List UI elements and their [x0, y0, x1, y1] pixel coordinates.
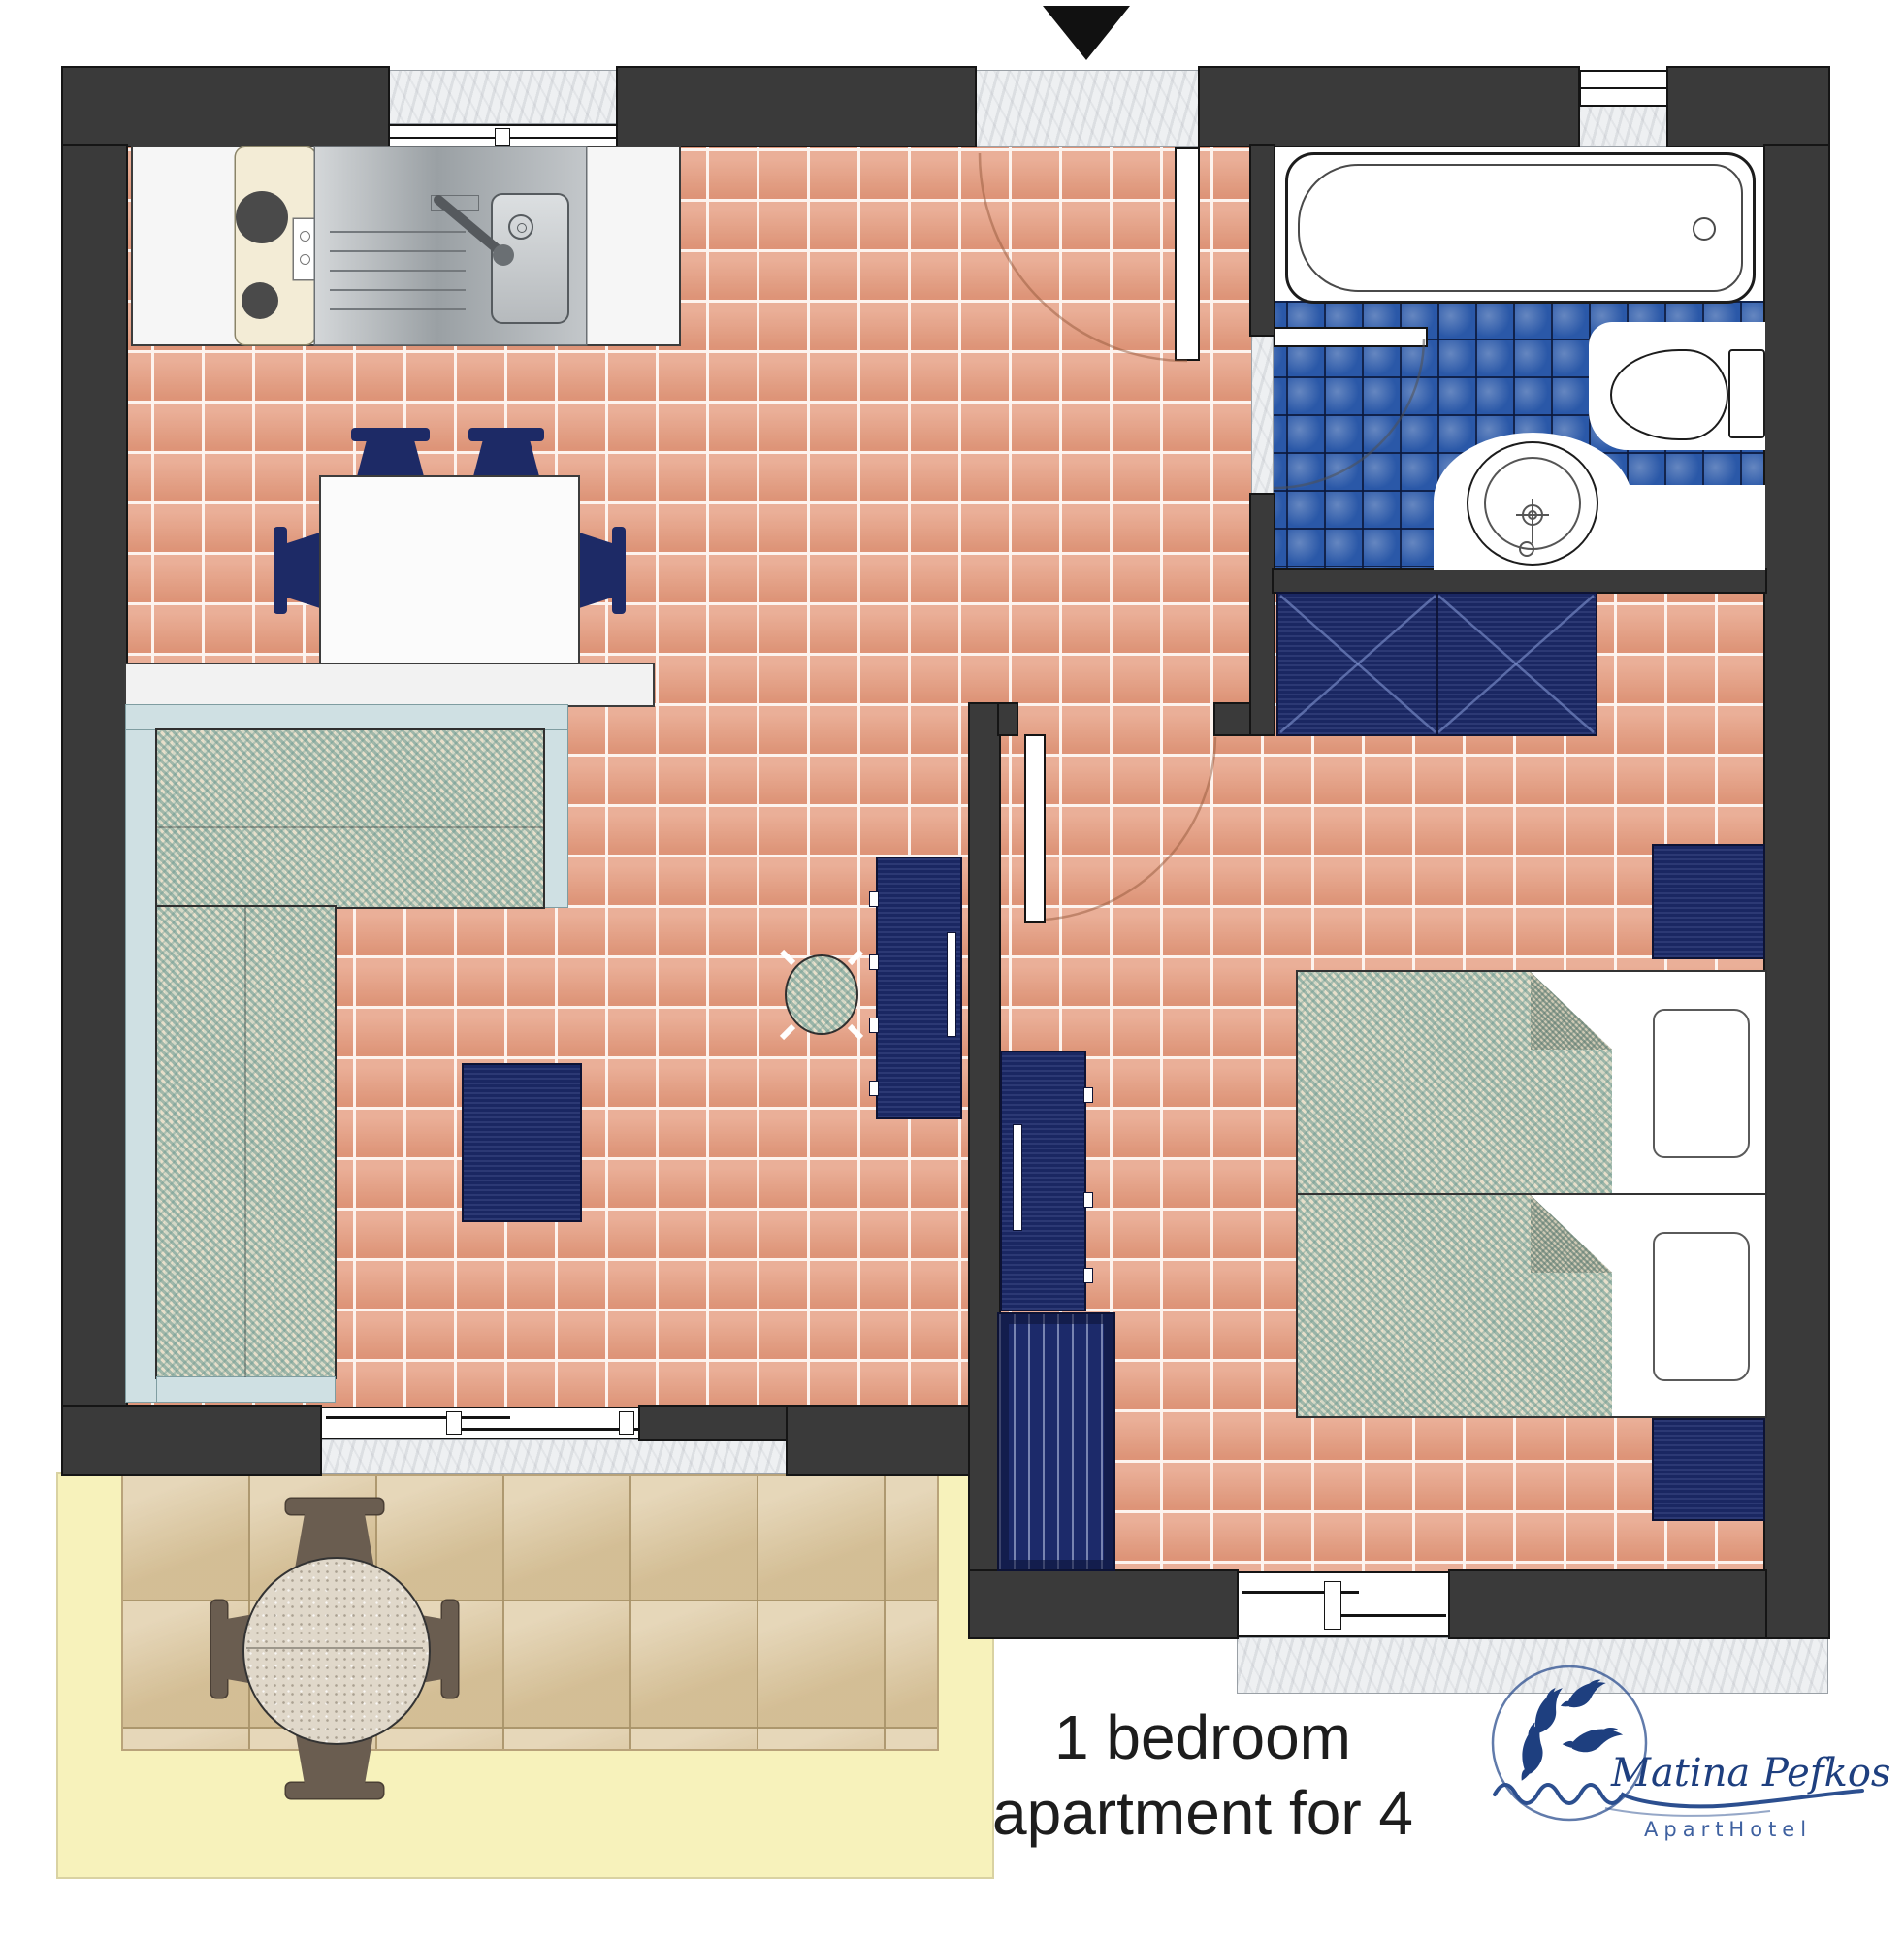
stove-burner-small — [242, 282, 278, 319]
wall-shelf — [126, 664, 653, 705]
dining-chair-back-3 — [274, 527, 287, 614]
wall-bedroom-bottom-b — [1450, 1571, 1765, 1637]
wall-bathroom-left-lower — [1251, 495, 1274, 734]
wall-bathroom-left-upper — [1251, 145, 1274, 335]
entrance-door-leaf — [1175, 147, 1200, 361]
bedroom-dresser-hinge — [1084, 1269, 1092, 1282]
logo-name: Matina Pefkos — [1610, 1751, 1890, 1795]
luggage-bench — [999, 1314, 1113, 1569]
terrace-chair-back-s — [286, 1783, 383, 1798]
nightstand-bottom — [1654, 1420, 1763, 1519]
logo-wave-2 — [1605, 1808, 1770, 1816]
dolphins-icon — [1500, 1673, 1625, 1781]
living-window-sill — [320, 1439, 788, 1474]
entrance-threshold — [975, 70, 1200, 147]
wall-right — [1765, 145, 1828, 1637]
bed-2-pillow — [1653, 1232, 1750, 1381]
hotel-logo: Matina Pefkos ApartHotel — [1489, 1647, 1896, 1938]
wall-top-d — [1668, 68, 1828, 145]
terrace-tile-floor — [121, 1474, 939, 1751]
wall-bathroom-bottom — [1274, 570, 1765, 592]
bathtub-drain — [1693, 217, 1716, 241]
sofa-cushions-horizontal — [157, 730, 543, 907]
bathtub — [1285, 152, 1756, 304]
entrance-arrow-icon — [1043, 6, 1130, 60]
bedroom-dresser-handle — [1014, 1125, 1021, 1230]
bedroom-door-leaf — [1024, 734, 1046, 923]
caption: 1 bedroom apartment for 4 — [902, 1699, 1503, 1851]
living-terrace-window — [320, 1406, 640, 1439]
sofa-frame-left — [126, 730, 157, 1402]
sofa-seam-v — [244, 907, 246, 1377]
washbasin-inner — [1484, 457, 1581, 550]
wall-bedroom-door-stub-left — [999, 704, 1017, 734]
bathroom-window — [1579, 70, 1668, 107]
toilet-tank — [1728, 349, 1765, 438]
floorplan-canvas: 1 bedroom apartment for 4 — [0, 0, 1904, 1940]
bedroom-dresser-hinge — [1084, 1088, 1092, 1102]
tv-cabinet-hinge — [870, 955, 878, 969]
dining-chair-back-2 — [468, 428, 544, 441]
bathroom-door-leaf — [1274, 327, 1428, 347]
wall-bedroom-bottom-a — [970, 1571, 1237, 1637]
wall-living-bottom-c — [788, 1406, 999, 1474]
coffee-table — [464, 1065, 580, 1220]
tv-cabinet-hinge — [870, 892, 878, 906]
kitchen-window-sill — [388, 70, 618, 124]
sofa-seam-h — [157, 826, 543, 828]
bedroom-dresser-hinge — [1084, 1193, 1092, 1207]
terrace-table-seam — [246, 1647, 423, 1649]
dining-chair-seat-2 — [472, 441, 540, 480]
tv-cabinet-hinge — [870, 1082, 878, 1095]
dining-chair-back-1 — [351, 428, 430, 441]
stove-control-panel — [294, 219, 315, 279]
sink-drainboard-lines — [330, 231, 475, 318]
wall-partition-bedroom — [970, 704, 999, 1571]
stove-burner-large — [236, 191, 288, 243]
sink-soap-tray — [431, 195, 479, 211]
logo-subtitle: ApartHotel — [1644, 1818, 1812, 1841]
terrace-chair-back-w — [211, 1600, 227, 1697]
wardrobe — [1278, 594, 1596, 734]
nightstand-top — [1654, 846, 1763, 957]
terrace-round-table — [242, 1557, 431, 1745]
caption-line-2: apartment for 4 — [902, 1775, 1503, 1851]
dining-chair-back-4 — [612, 527, 626, 614]
wall-left — [63, 145, 126, 1474]
wall-living-bottom-b — [640, 1406, 788, 1439]
wall-living-bottom-a — [63, 1406, 320, 1474]
dining-table — [321, 477, 578, 663]
sofa-frame-right-cap — [543, 730, 567, 907]
sofa-frame-top — [126, 705, 567, 730]
dining-chair-seat-4 — [576, 532, 612, 609]
wall-top-c — [1200, 68, 1578, 145]
wall-top-a — [63, 68, 388, 145]
bedroom-window — [1237, 1571, 1450, 1637]
terrace-chair-back-e — [442, 1600, 458, 1697]
kitchen-window — [388, 124, 618, 149]
round-stool — [787, 956, 856, 1033]
sink-basin — [491, 193, 569, 324]
tv-cabinet-hinge — [870, 1018, 878, 1032]
dining-chair-seat-3 — [287, 532, 323, 609]
caption-line-1: 1 bedroom — [902, 1699, 1503, 1775]
sink-drain — [508, 214, 533, 240]
tv-cabinet-handle — [948, 933, 955, 1036]
wall-top-b — [618, 68, 975, 145]
dining-chair-seat-1 — [356, 441, 425, 480]
bathroom-door-threshold — [1251, 335, 1274, 495]
bed-1-pillow — [1653, 1009, 1750, 1158]
terrace-chair-back-n — [286, 1499, 383, 1514]
sofa-frame-bottom-cap — [157, 1377, 335, 1402]
bathroom-window-sill — [1579, 105, 1668, 147]
